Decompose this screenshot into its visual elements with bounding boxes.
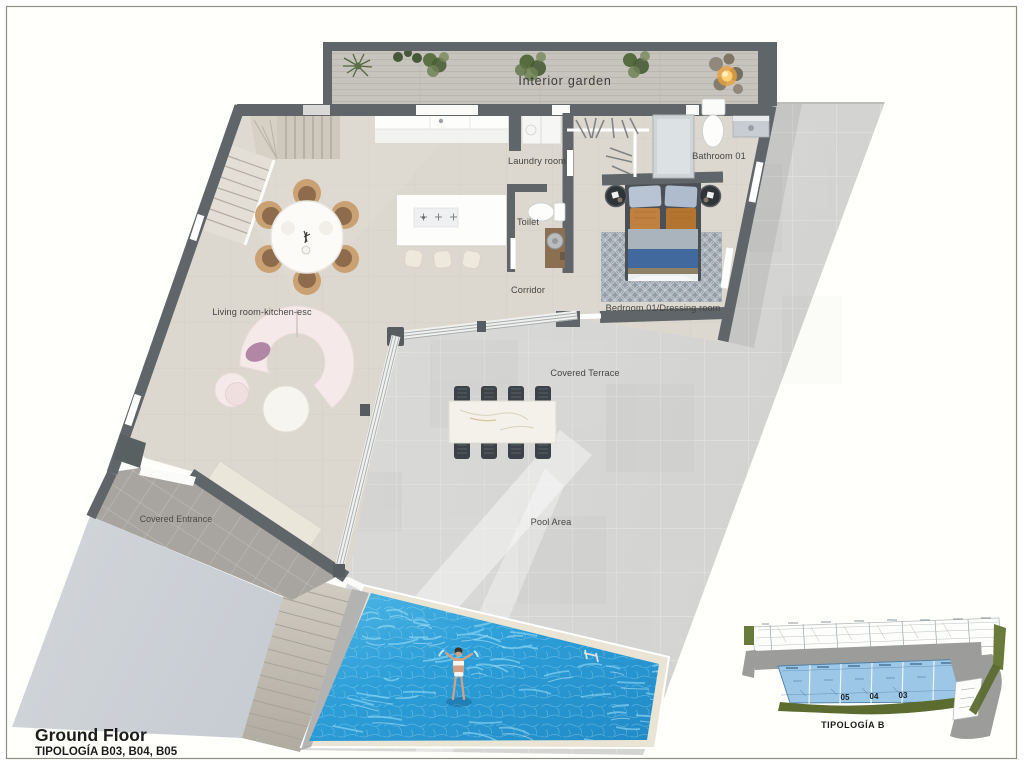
svg-text:Interior garden: Interior garden bbox=[518, 74, 611, 88]
svg-text:Living room-kitchen-esc: Living room-kitchen-esc bbox=[212, 307, 312, 317]
svg-text:Covered Entrance: Covered Entrance bbox=[140, 514, 213, 524]
svg-text:Pool Area: Pool Area bbox=[531, 517, 573, 527]
svg-text:TIPOLOGÍA B: TIPOLOGÍA B bbox=[821, 720, 885, 730]
svg-text:Corridor: Corridor bbox=[511, 285, 545, 295]
svg-text:Laundry room: Laundry room bbox=[508, 156, 566, 166]
svg-text:Bathroom 01: Bathroom 01 bbox=[692, 151, 746, 161]
svg-text:Covered Terrace: Covered Terrace bbox=[550, 368, 619, 378]
svg-text:Toilet: Toilet bbox=[517, 217, 539, 227]
svg-text:Bedroom 01/Dressing room: Bedroom 01/Dressing room bbox=[606, 303, 721, 313]
svg-text:05: 05 bbox=[841, 693, 850, 702]
svg-text:TIPOLOGÍA B03, B04, B05: TIPOLOGÍA B03, B04, B05 bbox=[35, 745, 178, 758]
svg-text:04: 04 bbox=[870, 692, 879, 701]
svg-text:03: 03 bbox=[899, 691, 908, 700]
svg-text:Ground Floor: Ground Floor bbox=[35, 725, 147, 745]
